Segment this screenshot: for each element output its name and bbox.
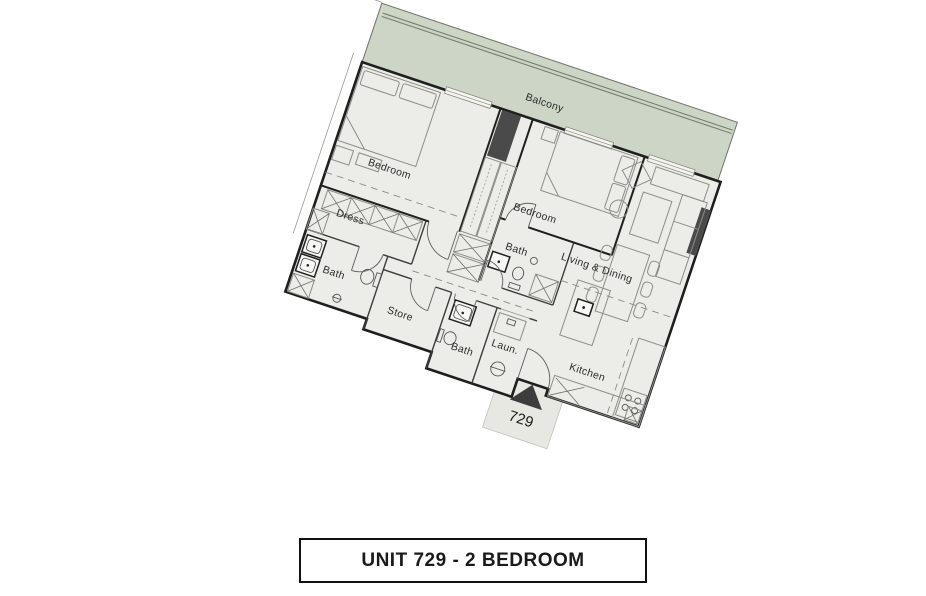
floor-plan-page: Balcony Bedroom Bedroom Dress Bath Bath … (0, 0, 926, 596)
page-title: UNIT 729 - 2 BEDROOM (361, 550, 584, 572)
title-box: UNIT 729 - 2 BEDROOM (299, 538, 647, 583)
floor-plan: Balcony Bedroom Bedroom Dress Bath Bath … (251, 2, 776, 515)
